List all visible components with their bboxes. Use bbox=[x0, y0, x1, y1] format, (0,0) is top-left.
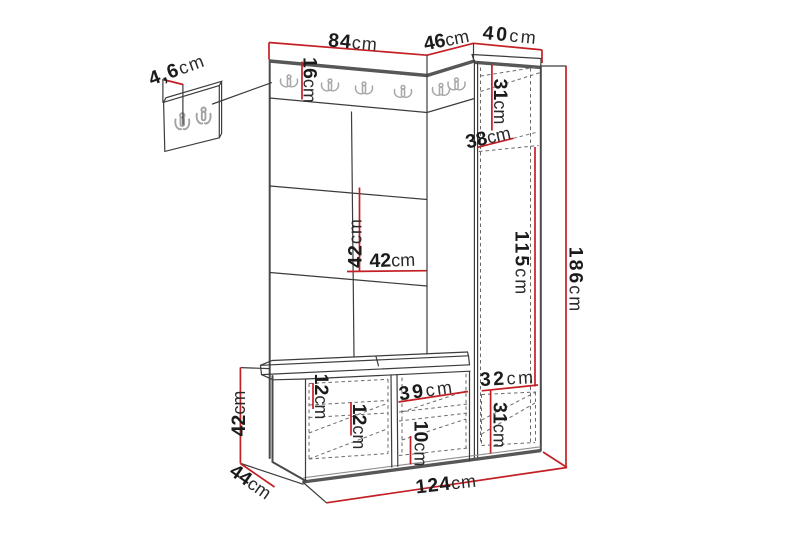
svg-text:31cm: 31cm bbox=[489, 402, 511, 448]
svg-text:186cm: 186cm bbox=[565, 247, 587, 314]
svg-text:42cm: 42cm bbox=[228, 391, 250, 437]
svg-text:124cm: 124cm bbox=[414, 470, 478, 499]
svg-text:39cm: 39cm bbox=[398, 376, 456, 406]
svg-text:115cm: 115cm bbox=[511, 231, 533, 296]
svg-text:10cm: 10cm bbox=[410, 421, 432, 467]
svg-text:46cm: 46cm bbox=[422, 25, 471, 55]
svg-text:42cm: 42cm bbox=[369, 249, 415, 273]
svg-text:32cm: 32cm bbox=[479, 366, 536, 391]
svg-text:12cm: 12cm bbox=[310, 374, 332, 420]
svg-text:84cm: 84cm bbox=[327, 29, 378, 55]
svg-text:4,6cm: 4,6cm bbox=[146, 50, 209, 91]
svg-text:16cm: 16cm bbox=[299, 57, 321, 103]
svg-text:31cm: 31cm bbox=[489, 79, 511, 125]
svg-text:12cm: 12cm bbox=[348, 404, 370, 450]
svg-text:42cm: 42cm bbox=[345, 218, 367, 268]
